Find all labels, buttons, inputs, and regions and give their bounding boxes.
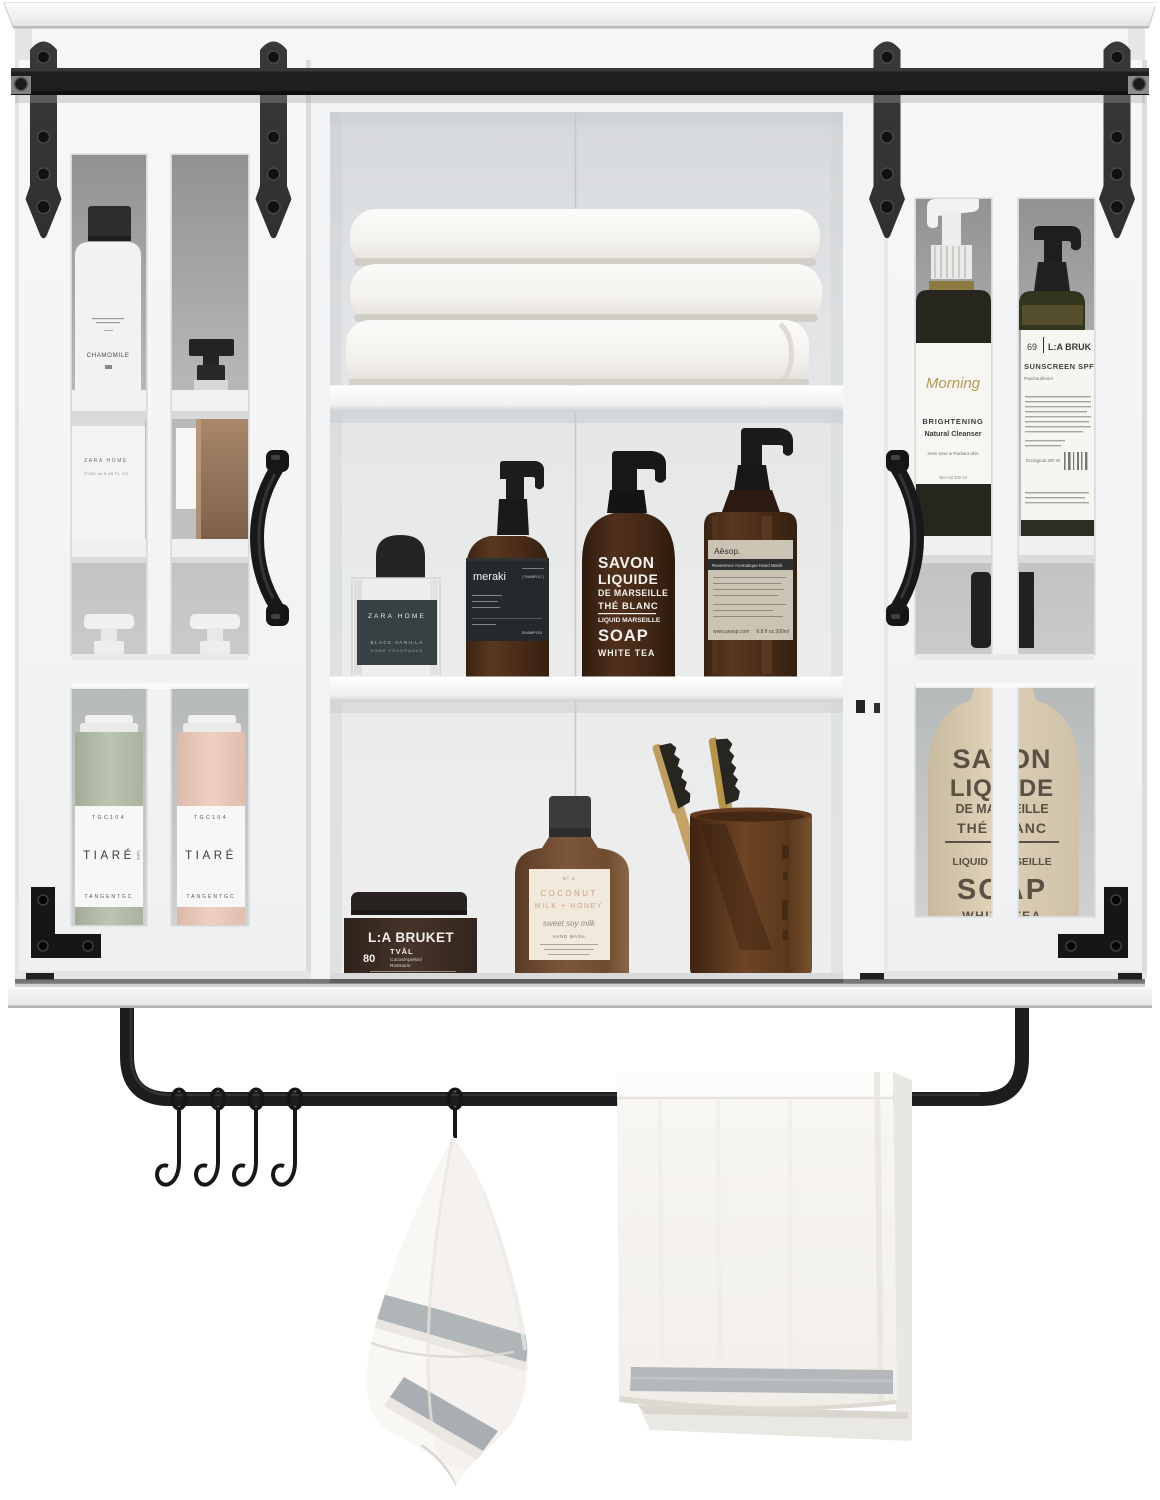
svg-text:SOAP: SOAP <box>598 627 649 645</box>
svg-text:Aēsop.: Aēsop. <box>714 546 740 556</box>
svg-text:TGC104: TGC104 <box>194 815 228 821</box>
svg-text:TIARÉ: TIARÉ <box>83 849 135 862</box>
svg-text:HOME FRAGRANCE: HOME FRAGRANCE <box>370 649 423 653</box>
svg-text:Morning: Morning <box>926 375 981 392</box>
svg-text:SHAMPOO: SHAMPOO <box>522 630 542 635</box>
svg-text:CHAMOMILE: CHAMOMILE <box>87 352 130 359</box>
svg-text:MILK + HONEY: MILK + HONEY <box>535 903 603 910</box>
svg-text:Patchouli/mint: Patchouli/mint <box>1024 376 1054 381</box>
svg-text:TIARÉ: TIARÉ <box>185 849 237 862</box>
svg-text:TGC104: TGC104 <box>92 815 126 821</box>
svg-text:even tone & Radiant skin: even tone & Radiant skin <box>927 451 979 456</box>
svg-text:TANGENTGC: TANGENTGC <box>84 894 133 900</box>
svg-text:COCONUT: COCONUT <box>540 889 597 898</box>
svg-text:BLACK VANILLA: BLACK VANILLA <box>370 640 423 645</box>
svg-text:TVÅL: TVÅL <box>390 947 414 956</box>
svg-text:6.8 fl oz 200ml: 6.8 fl oz 200ml <box>756 629 789 635</box>
svg-text:80: 80 <box>363 953 375 965</box>
svg-text:Cocos/Apelsin/: Cocos/Apelsin/ <box>390 957 423 963</box>
svg-text:69: 69 <box>1027 342 1037 352</box>
svg-text:THÉ BLANC: THÉ BLANC <box>598 601 658 612</box>
svg-text:SAVON: SAVON <box>598 555 654 572</box>
svg-text:TANGENTGC: TANGENTGC <box>186 894 235 900</box>
svg-text:Ecological 200 ml: Ecological 200 ml <box>1026 458 1060 463</box>
svg-text:Rosmarin: Rosmarin <box>390 963 411 969</box>
svg-text:sweet soy milk: sweet soy milk <box>543 919 596 928</box>
svg-text:www.aesop.com: www.aesop.com <box>713 629 749 635</box>
svg-text:ZARA HOME: ZARA HOME <box>368 613 426 620</box>
svg-text:L:A BRUKET: L:A BRUKET <box>368 930 454 945</box>
svg-text:TIARE: TIARE <box>136 850 140 861</box>
svg-text:HAND WASH: HAND WASH <box>553 934 586 939</box>
svg-text:WHITE TEA: WHITE TEA <box>598 648 655 658</box>
svg-text:LIQUID MARSEILLE: LIQUID MARSEILLE <box>598 617 661 624</box>
svg-text:ZARA HOME: ZARA HOME <box>84 458 128 464</box>
svg-text:LIQUIDE: LIQUIDE <box>598 571 658 587</box>
svg-text:Nº 2: Nº 2 <box>563 876 576 881</box>
svg-text:Net Vol 200 ml: Net Vol 200 ml <box>939 475 966 480</box>
svg-text:L:A BRUK: L:A BRUK <box>1048 342 1092 352</box>
svg-text:SUNSCREEN SPF: SUNSCREEN SPF <box>1024 362 1094 371</box>
svg-text:DE MARSEILLE: DE MARSEILLE <box>598 588 668 598</box>
svg-text:Reverence Aromatique Hand Wash: Reverence Aromatique Hand Wash <box>712 563 783 568</box>
svg-text:Natural Cleanser: Natural Cleanser <box>924 429 981 438</box>
svg-text:[ SHAMPOO ]: [ SHAMPOO ] <box>522 575 543 579</box>
svg-text:BRIGHTENING: BRIGHTENING <box>922 417 983 426</box>
svg-text:meraki: meraki <box>473 571 506 583</box>
svg-text:Ⓔ250 ml 8.45 FL OZ: Ⓔ250 ml 8.45 FL OZ <box>84 470 129 476</box>
